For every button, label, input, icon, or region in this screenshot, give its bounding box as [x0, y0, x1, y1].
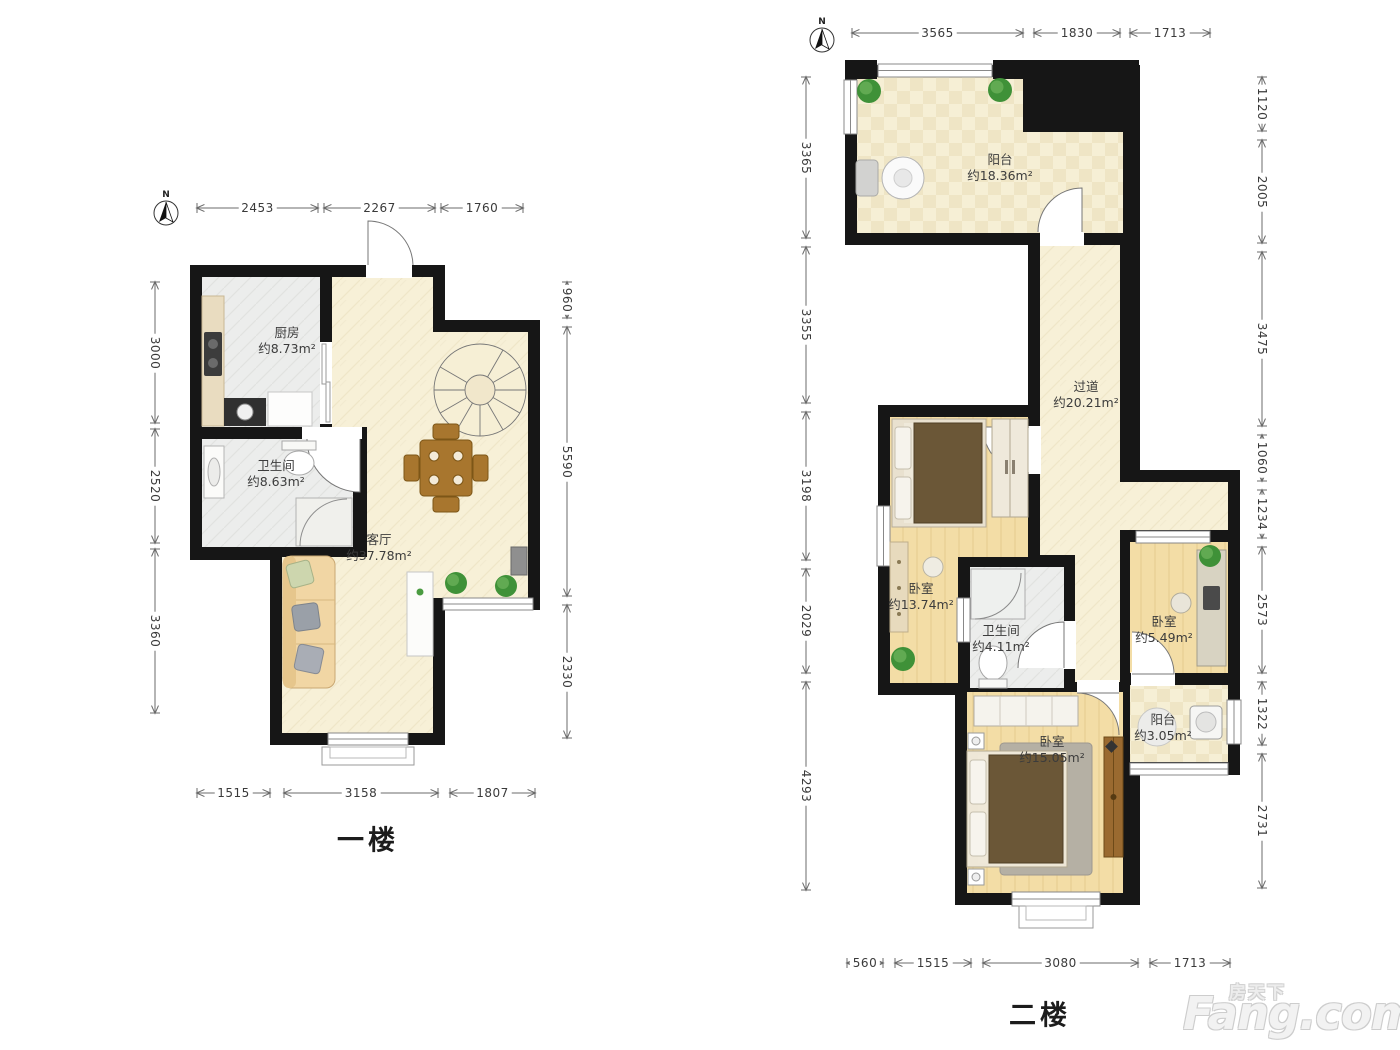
floor1-plan	[154, 201, 540, 765]
chair	[404, 455, 419, 481]
toilet-tank	[979, 679, 1007, 688]
bay-sill	[1019, 906, 1093, 928]
entry-door-arc	[368, 221, 413, 265]
laptop	[1203, 586, 1220, 610]
blanket	[914, 423, 982, 523]
room-corridor-floor	[1120, 482, 1228, 530]
stove	[204, 332, 222, 376]
stool	[923, 557, 943, 577]
chair	[473, 455, 488, 481]
room-living-floor	[332, 277, 433, 427]
room-corridor-floor	[1040, 245, 1120, 555]
basket	[856, 160, 878, 196]
kitchen-sliding-door	[322, 344, 326, 384]
chair	[433, 497, 459, 512]
sink	[237, 404, 253, 420]
blanket	[989, 755, 1063, 863]
pillow	[895, 427, 911, 469]
floorplan-page: 厨房 约8.73m² 卫生间 约8.63m² 客厅 约37.78m² 阳台 约1…	[0, 0, 1400, 1050]
toilet-tank	[282, 441, 316, 450]
pillow	[291, 602, 320, 631]
spiral-staircase	[434, 344, 526, 436]
pillow	[970, 760, 986, 804]
pillow	[294, 644, 325, 675]
north-compass	[154, 201, 178, 225]
floorplan-canvas	[0, 0, 1400, 1050]
shower	[971, 569, 1025, 619]
tv	[511, 547, 527, 575]
north-compass	[810, 28, 834, 52]
chair	[433, 424, 459, 439]
toilet	[979, 646, 1007, 680]
dining-table	[420, 440, 472, 496]
pillow	[895, 477, 911, 519]
pillow	[970, 812, 986, 856]
toilet	[284, 451, 314, 475]
chair	[1171, 593, 1191, 613]
floor2-plan	[810, 28, 1241, 928]
sofa	[283, 556, 335, 688]
kitchen-sliding-door	[326, 382, 330, 422]
bay-sill	[322, 747, 414, 765]
room-corridor-floor	[1075, 555, 1120, 682]
fridge	[268, 392, 312, 426]
